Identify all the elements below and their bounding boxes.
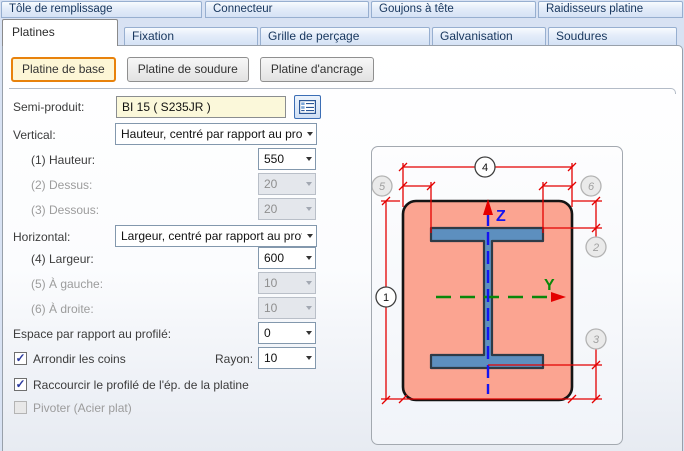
callout-2: 2	[586, 237, 606, 257]
semi-produit-input[interactable]: BI 15 ( S235JR )	[116, 96, 286, 118]
vertical-label: Vertical:	[13, 123, 56, 147]
hauteur-row: (1) Hauteur: 550	[3, 148, 343, 172]
semi-produit-label: Semi-produit:	[13, 95, 84, 119]
tab-page-platines: Platine de base Platine de soudure Plati…	[2, 45, 683, 451]
a-droite-row: (6) À droite: 10	[3, 297, 343, 321]
callout-4: 4	[475, 157, 495, 177]
selected-option: 10	[264, 276, 301, 290]
tab-label: Grille de perçage	[268, 29, 359, 43]
checkmark-icon: ✓	[15, 352, 25, 364]
preview-panel: 4 5 6 1 2	[371, 146, 623, 445]
selected-option: Hauteur, centré par rapport au profilé	[121, 127, 302, 141]
raccourcir-row: ✓ Raccourcir le profilé de l'ép. de la p…	[3, 373, 343, 397]
tab-label: Tôle de remplissage	[9, 3, 113, 15]
chevron-down-icon	[306, 306, 312, 310]
horizontal-mode-select[interactable]: Largeur, centré par rapport au profilé	[115, 225, 317, 247]
espace-label: Espace par rapport au profilé:	[13, 322, 171, 346]
svg-text:3: 3	[593, 334, 600, 346]
tab-connecteur[interactable]: Connecteur	[205, 1, 369, 18]
chevron-down-icon	[306, 256, 312, 260]
tab-label: Connecteur	[213, 3, 272, 15]
checkmark-icon: ✓	[15, 378, 25, 390]
semi-produit-row: Semi-produit: BI 15 ( S235JR )	[3, 95, 343, 119]
axis-z-label: Z	[496, 208, 506, 225]
chevron-down-icon	[306, 331, 312, 335]
espace-row: Espace par rapport au profilé: 0	[3, 322, 343, 346]
chevron-down-icon	[306, 356, 312, 360]
semi-produit-table-button[interactable]	[294, 95, 321, 119]
axis-y-label: Y	[544, 277, 555, 294]
tab-label: Galvanisation	[440, 29, 513, 43]
svg-text:6: 6	[588, 181, 595, 193]
tab-label: Soudures	[556, 29, 607, 43]
arrondir-checkbox[interactable]: ✓	[14, 352, 27, 365]
dessus-label: (2) Dessus:	[31, 173, 92, 197]
callout-1: 1	[376, 287, 396, 307]
selected-option: 20	[264, 177, 301, 191]
platine-de-base-button[interactable]: Platine de base	[11, 57, 116, 82]
chevron-down-icon	[306, 157, 312, 161]
pivoter-label: Pivoter (Acier plat)	[33, 396, 132, 420]
hauteur-select[interactable]: 550	[258, 148, 316, 170]
tab-label: Fixation	[132, 29, 174, 43]
a-gauche-row: (5) À gauche: 10	[3, 272, 343, 296]
svg-text:4: 4	[482, 162, 488, 174]
chevron-down-icon	[306, 207, 312, 211]
plate-type-button-row: Platine de base Platine de soudure Plati…	[11, 57, 374, 82]
section-separator	[9, 88, 676, 94]
horizontal-label: Horizontal:	[13, 225, 70, 249]
tab-label: Platines	[12, 25, 55, 39]
base-plate-diagram: 4 5 6 1 2	[372, 147, 621, 443]
a-gauche-label: (5) À gauche:	[31, 272, 103, 296]
tab-goujons-a-tete[interactable]: Goujons à tête	[371, 1, 536, 18]
hauteur-label: (1) Hauteur:	[31, 148, 95, 172]
pivoter-checkbox	[14, 401, 27, 414]
callout-5: 5	[372, 176, 392, 196]
selected-option: 10	[264, 301, 301, 315]
selected-option: 600	[264, 251, 301, 265]
raccourcir-label: Raccourcir le profilé de l'ép. de la pla…	[33, 373, 249, 397]
platine-d-ancrage-button[interactable]: Platine d'ancrage	[260, 57, 374, 82]
a-droite-label: (6) À droite:	[31, 297, 94, 321]
dessus-row: (2) Dessus: 20	[3, 173, 343, 197]
svg-text:1: 1	[383, 292, 389, 304]
espace-select[interactable]: 0	[258, 322, 316, 344]
largeur-select[interactable]: 600	[258, 247, 316, 269]
arrondir-label: Arrondir les coins	[33, 347, 126, 371]
raccourcir-checkbox[interactable]: ✓	[14, 378, 27, 391]
tab-grille-de-percage[interactable]: Grille de perçage	[260, 27, 430, 46]
chevron-down-icon	[306, 281, 312, 285]
chevron-down-icon	[306, 182, 312, 186]
tab-tole-de-remplissage[interactable]: Tôle de remplissage	[1, 1, 202, 18]
chevron-down-icon	[307, 132, 313, 136]
rayon-select[interactable]: 10	[258, 347, 316, 369]
dessus-select: 20	[258, 173, 316, 195]
platine-de-soudure-button[interactable]: Platine de soudure	[127, 57, 249, 82]
a-droite-select: 10	[258, 297, 316, 319]
tab-galvanisation[interactable]: Galvanisation	[432, 27, 546, 46]
vertical-mode-select[interactable]: Hauteur, centré par rapport au profilé	[115, 123, 317, 145]
selected-option: 550	[264, 152, 301, 166]
selected-option: 10	[264, 351, 301, 365]
dialog-window: Tôle de remplissage Connecteur Goujons à…	[0, 0, 684, 451]
tab-fixation[interactable]: Fixation	[124, 27, 258, 46]
dessous-label: (3) Dessous:	[31, 198, 99, 222]
selected-option: 0	[264, 326, 301, 340]
pivoter-row: Pivoter (Acier plat)	[3, 396, 343, 420]
selected-option: 20	[264, 202, 301, 216]
svg-text:2: 2	[592, 242, 599, 254]
vertical-row: Vertical: Hauteur, centré par rapport au…	[3, 123, 343, 147]
largeur-row: (4) Largeur: 600	[3, 247, 343, 271]
chevron-down-icon	[307, 234, 313, 238]
largeur-label: (4) Largeur:	[31, 247, 94, 271]
dessous-select: 20	[258, 198, 316, 220]
tab-label: Raidisseurs platine	[546, 3, 643, 15]
tab-raidisseurs-platine[interactable]: Raidisseurs platine	[538, 1, 683, 18]
svg-text:5: 5	[379, 181, 386, 193]
horizontal-row: Horizontal: Largeur, centré par rapport …	[3, 225, 343, 249]
a-gauche-select: 10	[258, 272, 316, 294]
tab-platines[interactable]: Platines	[2, 19, 118, 46]
tab-soudures[interactable]: Soudures	[548, 27, 677, 46]
callout-3: 3	[586, 329, 606, 349]
callout-6: 6	[581, 176, 601, 196]
rayon-label: Rayon:	[215, 347, 253, 371]
selected-option: Largeur, centré par rapport au profilé	[121, 229, 302, 243]
table-select-icon	[299, 100, 316, 114]
arrondir-row: ✓ Arrondir les coins Rayon: 10	[3, 347, 343, 371]
tab-label: Goujons à tête	[379, 3, 454, 15]
dessous-row: (3) Dessous: 20	[3, 198, 343, 222]
